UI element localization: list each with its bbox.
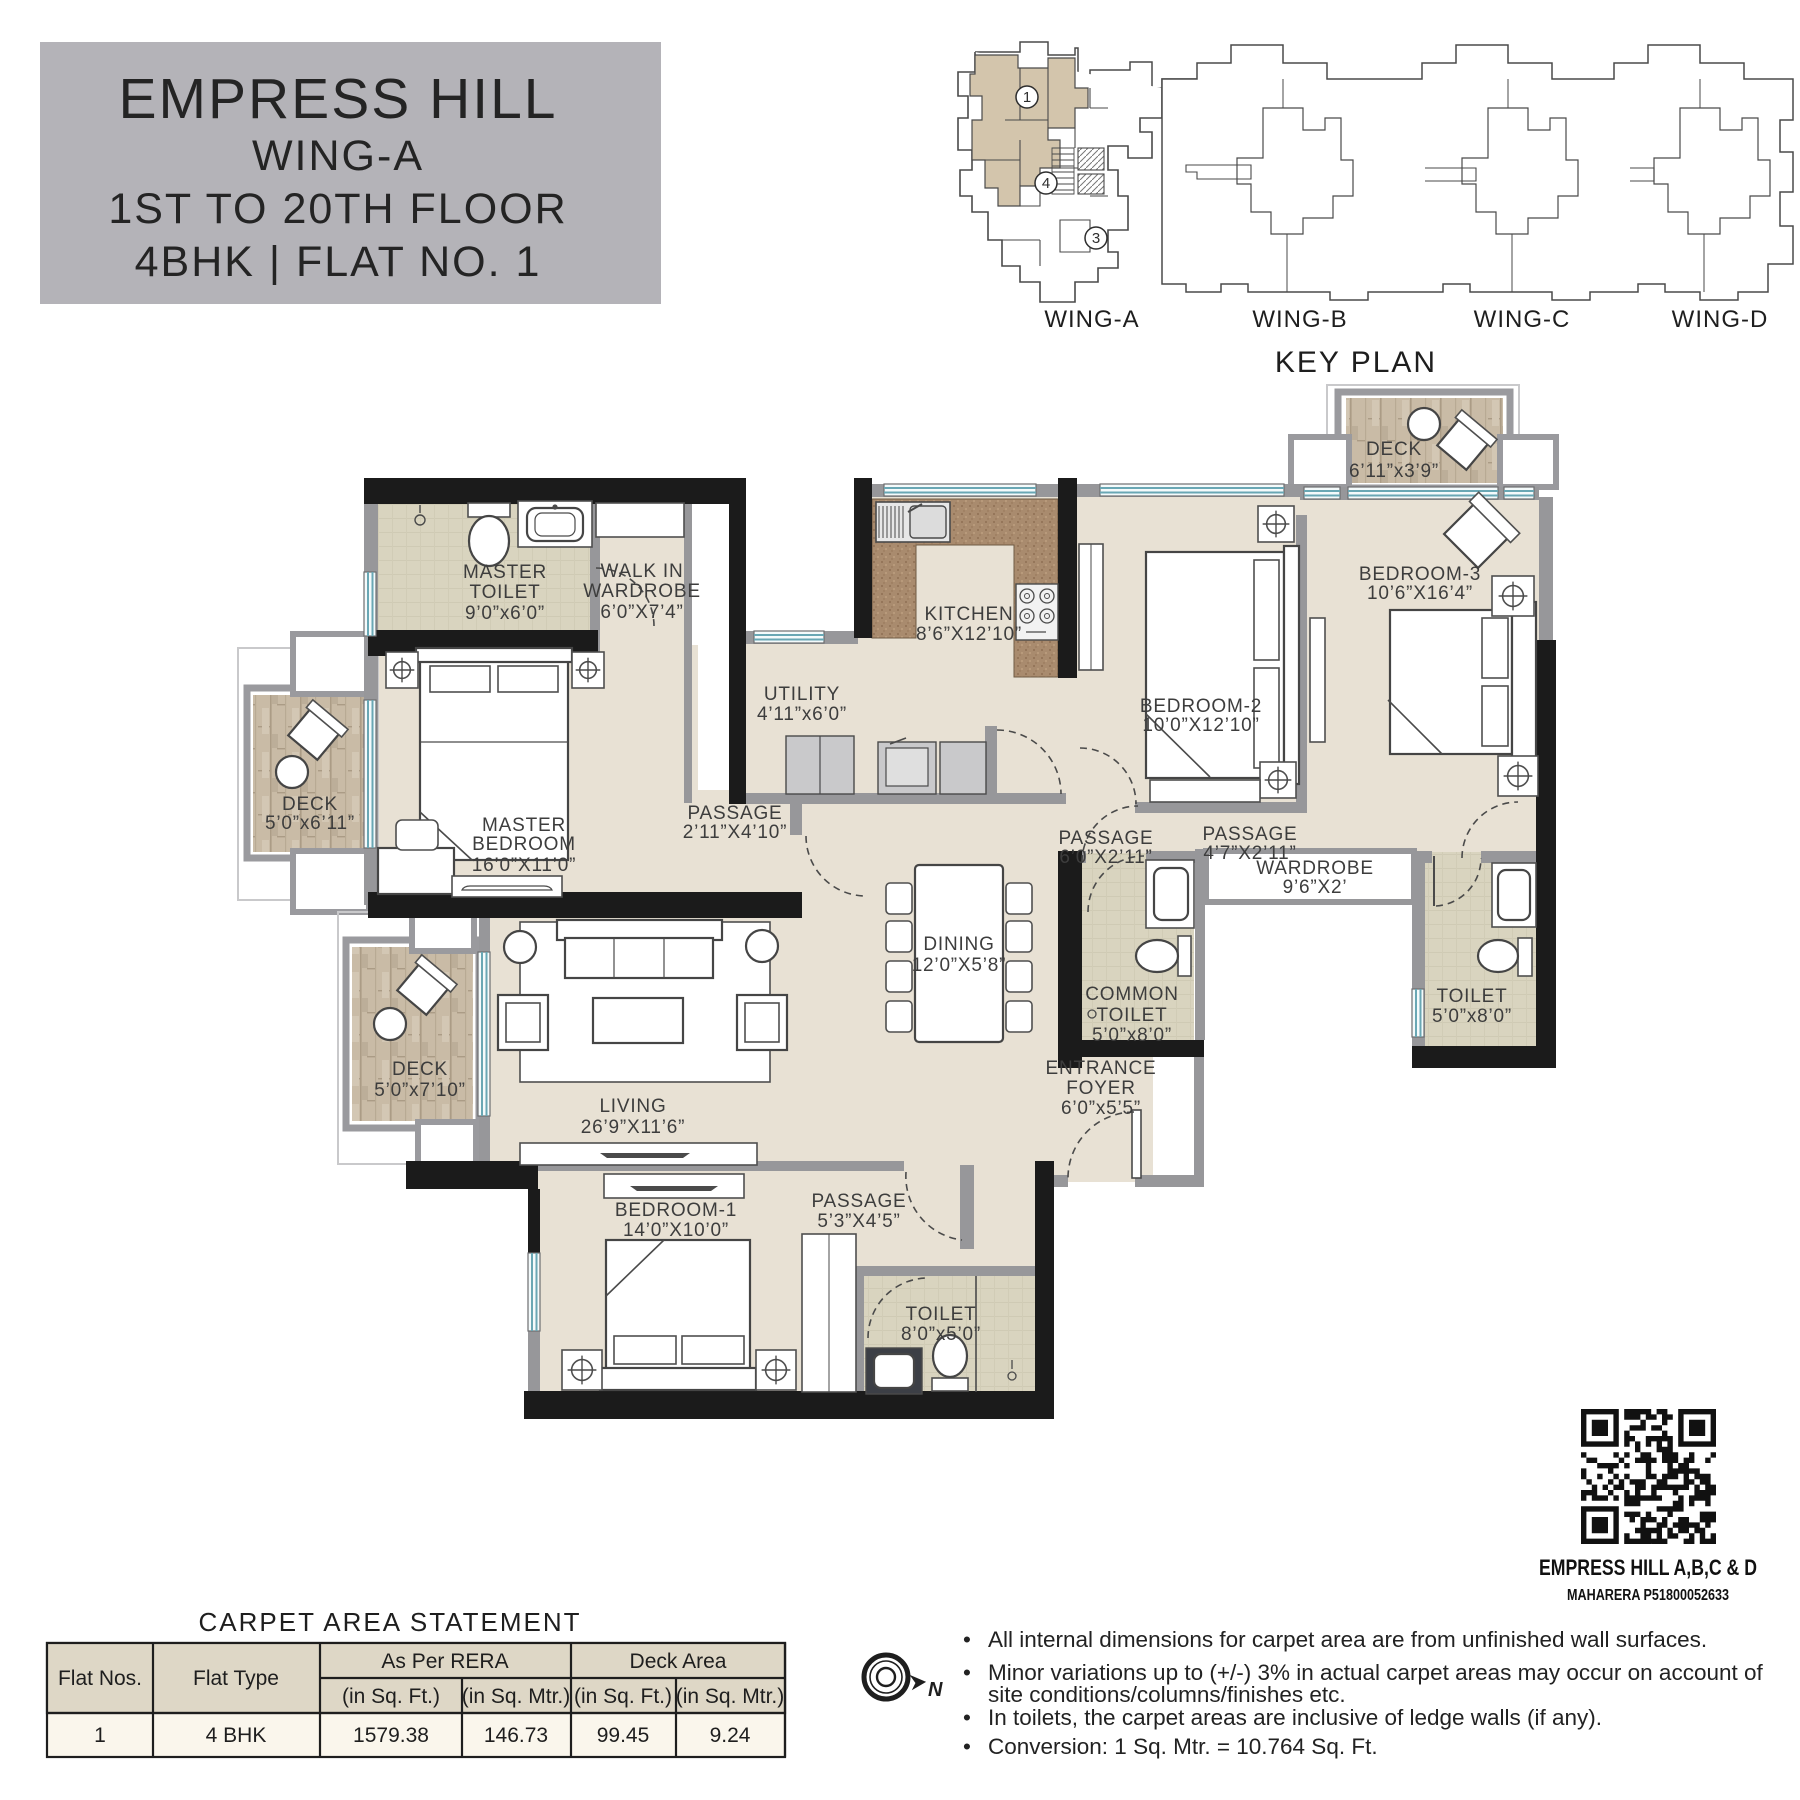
svg-text:146.73: 146.73 [484, 1724, 548, 1747]
svg-text:8’6”X12’10”: 8’6”X12’10” [916, 624, 1022, 645]
svg-text:CARPET AREA STATEMENT: CARPET AREA STATEMENT [199, 1607, 582, 1637]
svg-text:BEDROOM-2: BEDROOM-2 [1140, 696, 1262, 717]
svg-text:26’9”X11’6”: 26’9”X11’6” [581, 1117, 686, 1138]
svg-text:Conversion: 1 Sq. Mtr. = 10.76: Conversion: 1 Sq. Mtr. = 10.764 Sq. Ft. [988, 1734, 1378, 1759]
svg-text:14’0”X10’0”: 14’0”X10’0” [623, 1220, 729, 1241]
svg-text:DECK: DECK [1366, 439, 1422, 460]
svg-text:DECK: DECK [392, 1059, 448, 1080]
svg-text:BEDROOM-3: BEDROOM-3 [1359, 564, 1481, 585]
svg-text:TOILET: TOILET [906, 1304, 977, 1325]
svg-text:5’0”x8’0”: 5’0”x8’0” [1092, 1025, 1172, 1046]
svg-text:MAHARERA P51800052633: MAHARERA P51800052633 [1567, 1587, 1729, 1604]
svg-text:WING-A: WING-A [1044, 306, 1139, 333]
svg-text:12’0”X5’8”: 12’0”X5’8” [912, 955, 1007, 976]
svg-text:4: 4 [1042, 175, 1050, 192]
svg-text:PASSAGE: PASSAGE [1058, 828, 1153, 849]
svg-text:1579.38: 1579.38 [353, 1724, 429, 1747]
svg-text:4’11”x6’0”: 4’11”x6’0” [757, 704, 847, 725]
svg-text:8’0”x5’0”: 8’0”x5’0” [901, 1324, 981, 1345]
svg-text:1ST TO 20TH FLOOR: 1ST TO 20TH FLOOR [108, 185, 567, 233]
svg-text:BEDROOM: BEDROOM [472, 834, 576, 855]
svg-text:•: • [963, 1627, 971, 1652]
svg-text:6’11”x3’9”: 6’11”x3’9” [1349, 461, 1439, 482]
svg-text:•: • [963, 1660, 971, 1685]
svg-text:PASSAGE: PASSAGE [811, 1191, 906, 1212]
svg-text:PASSAGE: PASSAGE [687, 803, 782, 824]
svg-text:9’6”X2’: 9’6”X2’ [1283, 877, 1348, 898]
svg-text:5’0”x7’10”: 5’0”x7’10” [374, 1080, 465, 1101]
svg-text:TOILET: TOILET [1437, 986, 1508, 1007]
svg-text:5’3”X4’5”: 5’3”X4’5” [817, 1211, 900, 1232]
svg-text:TOILET: TOILET [1097, 1005, 1168, 1026]
svg-text:KITCHEN: KITCHEN [925, 604, 1014, 625]
svg-text:WARDROBE: WARDROBE [583, 581, 701, 602]
svg-text:BEDROOM-1: BEDROOM-1 [615, 1200, 737, 1221]
svg-text:MASTER: MASTER [463, 562, 547, 583]
svg-text:9’0”x6’0”: 9’0”x6’0” [465, 603, 545, 624]
svg-text:Flat Nos.: Flat Nos. [58, 1667, 142, 1690]
svg-text:(in Sq. Ft.): (in Sq. Ft.) [574, 1685, 672, 1708]
svg-text:WING-C: WING-C [1474, 306, 1571, 333]
svg-text:All internal dimensions for ca: All internal dimensions for carpet area … [988, 1627, 1707, 1652]
svg-text:LIVING: LIVING [599, 1096, 666, 1117]
svg-text:PASSAGE: PASSAGE [1202, 824, 1297, 845]
svg-text:4BHK | FLAT NO. 1: 4BHK | FLAT NO. 1 [135, 238, 542, 286]
svg-text:•: • [963, 1705, 971, 1730]
svg-text:In toilets, the carpet areas a: In toilets, the carpet areas are inclusi… [988, 1705, 1602, 1730]
svg-text:1: 1 [94, 1724, 106, 1747]
svg-text:DINING: DINING [923, 934, 994, 955]
svg-text:Flat Type: Flat Type [193, 1667, 279, 1690]
svg-text:KEY PLAN: KEY PLAN [1275, 346, 1437, 379]
svg-text:WING-B: WING-B [1252, 306, 1347, 333]
svg-text:As Per RERA: As Per RERA [381, 1650, 508, 1673]
svg-text:(in Sq. Ft.): (in Sq. Ft.) [342, 1685, 440, 1708]
svg-text:WALK IN: WALK IN [600, 561, 683, 582]
svg-text:EMPRESS HILL A,B,C & D: EMPRESS HILL A,B,C & D [1539, 1555, 1757, 1580]
svg-text:WING-D: WING-D [1672, 306, 1769, 333]
svg-text:3: 3 [1092, 230, 1100, 247]
svg-text:ENTRANCE: ENTRANCE [1046, 1058, 1157, 1079]
svg-text:6’0”X2’11”: 6’0”X2’11” [1059, 847, 1152, 868]
svg-text:UTILITY: UTILITY [764, 684, 840, 705]
svg-text:6’0”x5’5”: 6’0”x5’5” [1061, 1098, 1141, 1119]
svg-text:1: 1 [1023, 89, 1031, 106]
svg-text:DECK: DECK [282, 794, 338, 815]
svg-text:10’0”X12’10”: 10’0”X12’10” [1142, 715, 1259, 736]
svg-text:N: N [928, 1679, 943, 1701]
svg-text:6’0”X7’4”: 6’0”X7’4” [600, 602, 683, 623]
svg-text:10’6”X16’4”: 10’6”X16’4” [1367, 583, 1473, 604]
svg-text:COMMON: COMMON [1085, 984, 1178, 1005]
svg-text:2’11”X4’10”: 2’11”X4’10” [683, 822, 788, 843]
svg-text:(in Sq. Mtr.): (in Sq. Mtr.) [676, 1685, 785, 1708]
svg-text:16’0”X11’0”: 16’0”X11’0” [472, 855, 577, 876]
svg-text:9.24: 9.24 [710, 1724, 751, 1747]
svg-text:MASTER: MASTER [482, 815, 566, 836]
svg-text:5’0”x6’11”: 5’0”x6’11” [265, 813, 355, 834]
svg-text:TOILET: TOILET [470, 582, 541, 603]
svg-text:(in Sq. Mtr.): (in Sq. Mtr.) [462, 1685, 571, 1708]
svg-text:FOYER: FOYER [1066, 1078, 1135, 1099]
svg-text:•: • [963, 1734, 971, 1759]
svg-text:4 BHK: 4 BHK [206, 1724, 267, 1747]
svg-text:Deck Area: Deck Area [630, 1650, 727, 1673]
svg-text:5’0”x8’0”: 5’0”x8’0” [1432, 1006, 1512, 1027]
svg-text:99.45: 99.45 [597, 1724, 650, 1747]
svg-text:WING-A: WING-A [252, 132, 424, 180]
svg-text:WARDROBE: WARDROBE [1256, 858, 1374, 879]
svg-text:site conditions/columns/finish: site conditions/columns/finishes etc. [988, 1682, 1346, 1707]
svg-text:EMPRESS HILL: EMPRESS HILL [119, 67, 558, 131]
